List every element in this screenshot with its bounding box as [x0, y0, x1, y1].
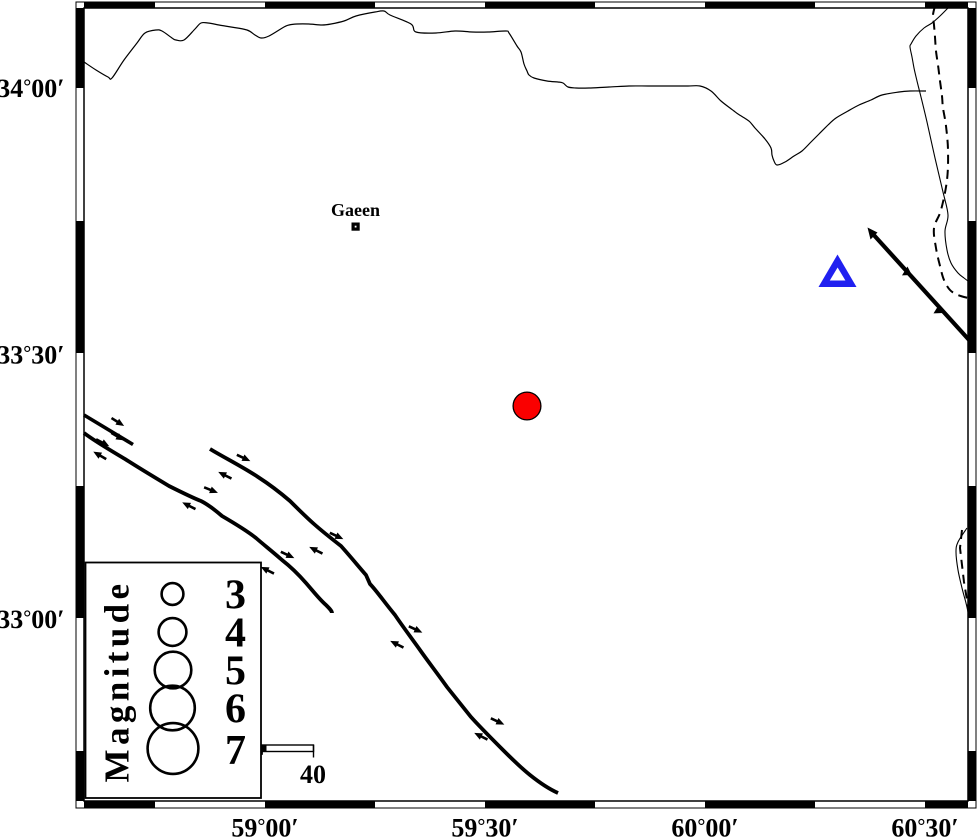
svg-text:60°00′: 60°00′ — [671, 814, 738, 839]
svg-text:60°30′: 60°30′ — [891, 814, 958, 839]
svg-text:59°30′: 59°30′ — [451, 814, 518, 839]
svg-text:33°30′: 33°30′ — [0, 341, 65, 370]
svg-text:6: 6 — [225, 687, 246, 733]
svg-text:Magnitude: Magnitude — [98, 580, 137, 783]
svg-text:7: 7 — [225, 728, 246, 774]
svg-text:34°00′: 34°00′ — [0, 74, 65, 103]
svg-text:40: 40 — [300, 760, 326, 789]
svg-text:59°00′: 59°00′ — [231, 814, 298, 839]
svg-text:Gaeen: Gaeen — [331, 200, 380, 220]
svg-text:33°00′: 33°00′ — [0, 605, 65, 634]
